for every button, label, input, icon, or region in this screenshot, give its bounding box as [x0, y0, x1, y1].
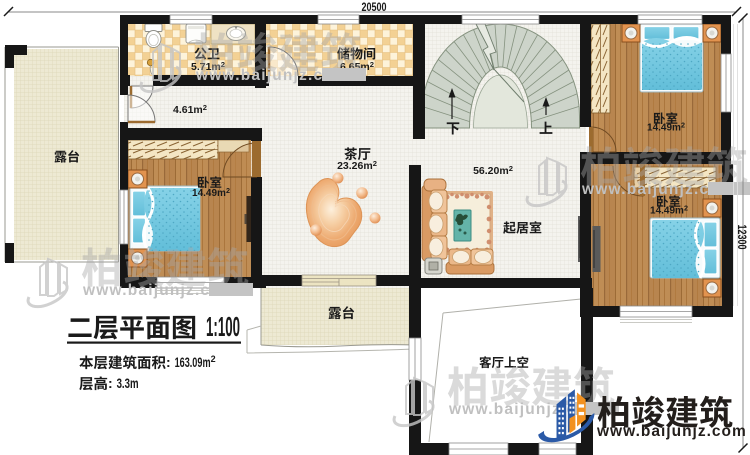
svg-text:14.49m2: 14.49m2 — [650, 204, 688, 217]
svg-text:4.61m2: 4.61m2 — [173, 103, 207, 116]
svg-text:: 163.09m2: : 163.09m2 — [166, 354, 216, 370]
svg-text:23.26m2: 23.26m2 — [337, 159, 377, 172]
svg-text:14.49m2: 14.49m2 — [192, 186, 230, 199]
svg-text:56.20m2: 56.20m2 — [473, 164, 513, 177]
svg-text:20500: 20500 — [362, 2, 387, 14]
svg-text:1:100: 1:100 — [206, 311, 240, 342]
svg-text:www.baijunjz.com: www.baijunjz.com — [596, 423, 747, 440]
svg-text:14.49m2: 14.49m2 — [647, 121, 685, 134]
svg-text:12300: 12300 — [735, 225, 747, 250]
svg-text:: 3.3m: : 3.3m — [108, 375, 139, 391]
